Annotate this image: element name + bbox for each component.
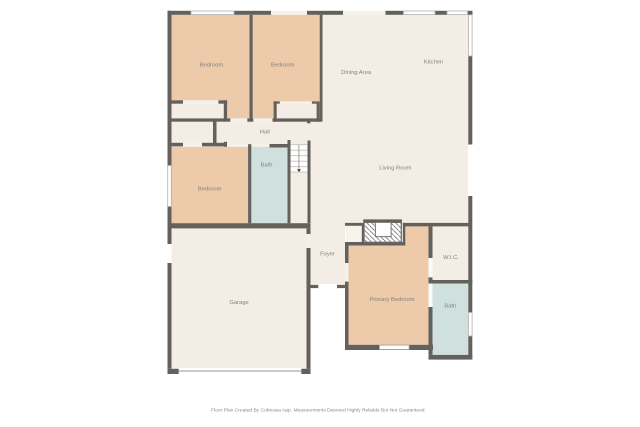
svg-text:Floor Plan Created By Cubicasa: Floor Plan Created By Cubicasa App. Meas… [211, 408, 426, 414]
svg-text:Bedroom: Bedroom [198, 187, 222, 193]
svg-text:Garage: Garage [229, 300, 248, 306]
svg-text:Living Room: Living Room [379, 165, 411, 171]
svg-text:Dining Area: Dining Area [341, 70, 372, 76]
svg-text:Hall: Hall [260, 130, 270, 136]
svg-text:Primary Bedroom: Primary Bedroom [369, 297, 414, 303]
svg-text:W.I.C.: W.I.C. [443, 255, 459, 261]
svg-text:Bedroom: Bedroom [271, 63, 295, 69]
svg-text:Foyer: Foyer [320, 251, 335, 257]
svg-text:Bath: Bath [444, 304, 456, 310]
svg-text:Kitchen: Kitchen [424, 60, 443, 66]
svg-text:Bath: Bath [261, 162, 273, 168]
svg-text:Bedroom: Bedroom [200, 62, 224, 68]
